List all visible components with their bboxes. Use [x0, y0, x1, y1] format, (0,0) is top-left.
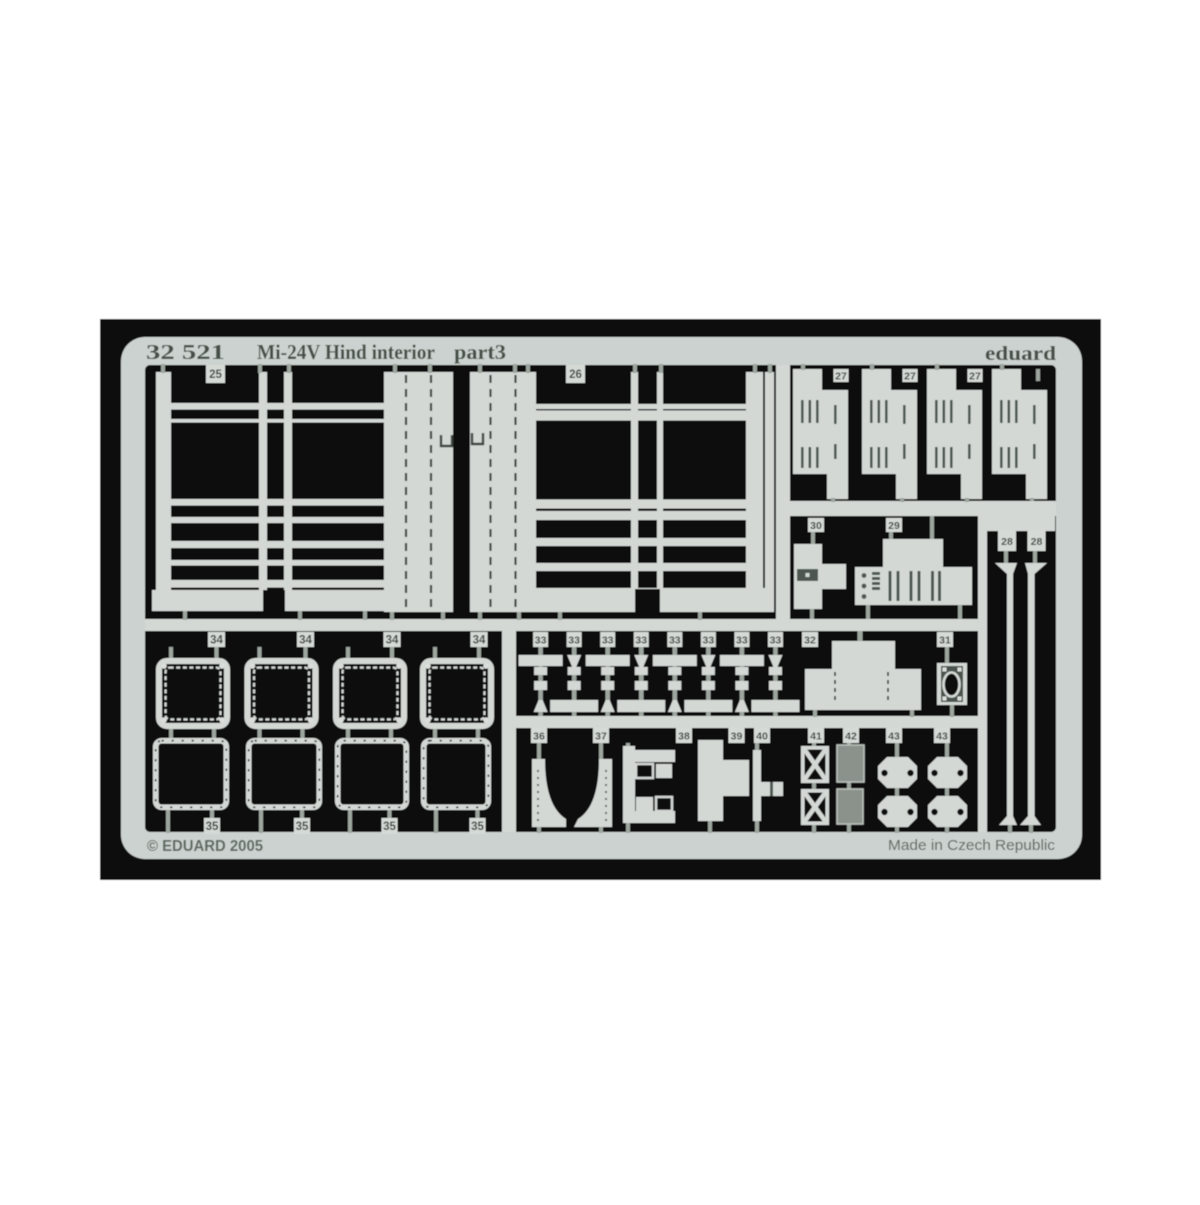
svg-text:33: 33	[770, 634, 782, 646]
svg-text:39: 39	[731, 730, 743, 742]
svg-text:36: 36	[533, 730, 545, 742]
svg-text:25: 25	[209, 369, 222, 381]
svg-text:33: 33	[568, 634, 580, 646]
svg-text:33: 33	[635, 634, 647, 646]
svg-text:37: 37	[595, 730, 607, 742]
svg-text:27: 27	[835, 370, 847, 382]
svg-text:Mi-24V Hind interior: Mi-24V Hind interior	[257, 340, 435, 364]
svg-text:33: 33	[602, 634, 614, 646]
svg-text:43: 43	[936, 730, 948, 742]
svg-text:28: 28	[1031, 536, 1043, 548]
svg-text:© EDUARD 2005: © EDUARD 2005	[147, 838, 263, 855]
svg-text:28: 28	[1001, 536, 1013, 548]
svg-text:27: 27	[904, 370, 916, 382]
svg-text:32 521: 32 521	[146, 340, 225, 364]
svg-text:40: 40	[756, 730, 768, 742]
svg-text:30: 30	[810, 520, 822, 532]
svg-text:Made in Czech Republic: Made in Czech Republic	[888, 837, 1056, 854]
svg-text:32: 32	[804, 634, 816, 646]
svg-text:35: 35	[206, 821, 219, 833]
svg-text:35: 35	[471, 821, 484, 833]
svg-text:29: 29	[888, 520, 900, 532]
svg-text:34: 34	[473, 635, 486, 647]
svg-text:38: 38	[678, 730, 690, 742]
svg-text:33: 33	[703, 634, 715, 646]
svg-text:34: 34	[210, 635, 223, 647]
svg-text:31: 31	[939, 634, 951, 646]
svg-text:eduard: eduard	[985, 343, 1056, 365]
svg-text:33: 33	[669, 634, 681, 646]
svg-text:34: 34	[386, 635, 399, 647]
svg-text:35: 35	[383, 821, 396, 833]
svg-text:41: 41	[810, 730, 822, 742]
svg-text:33: 33	[535, 634, 547, 646]
svg-text:34: 34	[299, 635, 312, 647]
svg-text:part3: part3	[454, 340, 506, 364]
svg-text:43: 43	[888, 730, 900, 742]
svg-text:42: 42	[845, 730, 857, 742]
svg-text:35: 35	[296, 821, 309, 833]
svg-text:33: 33	[736, 634, 748, 646]
svg-text:27: 27	[969, 370, 981, 382]
svg-text:26: 26	[569, 369, 582, 381]
